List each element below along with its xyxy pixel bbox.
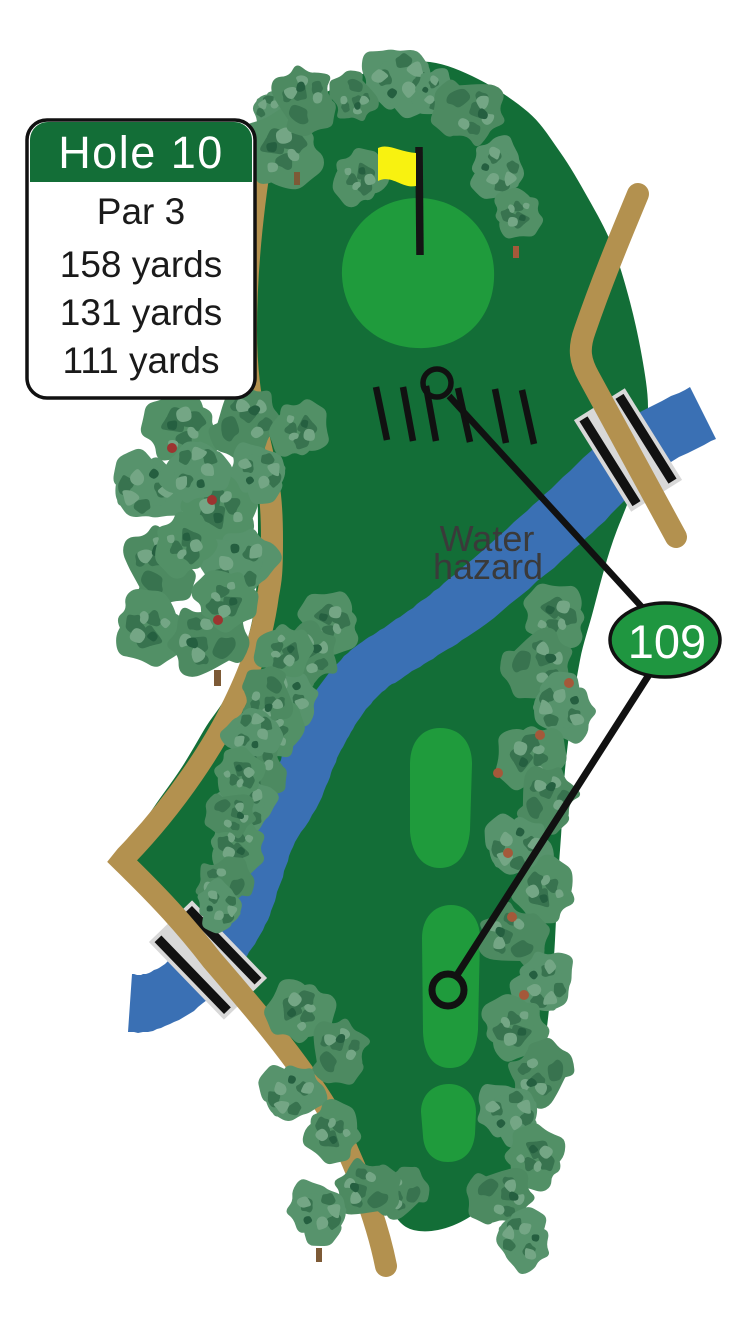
svg-text:111 yards: 111 yards bbox=[63, 340, 220, 381]
svg-text:158 yards: 158 yards bbox=[60, 244, 223, 285]
svg-text:hazard: hazard bbox=[433, 546, 543, 587]
svg-text:Par 3: Par 3 bbox=[97, 191, 185, 232]
svg-text:Hole 10: Hole 10 bbox=[58, 127, 224, 178]
svg-text:109: 109 bbox=[628, 615, 706, 668]
svg-text:131 yards: 131 yards bbox=[60, 292, 223, 333]
